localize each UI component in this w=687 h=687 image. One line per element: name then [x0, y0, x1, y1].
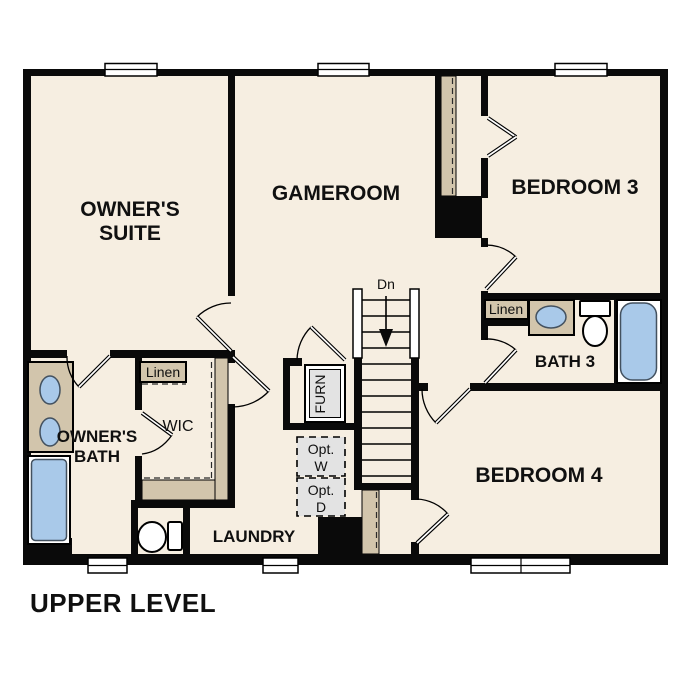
- wall-laundry-left: [183, 508, 190, 554]
- stair-railing-right: [410, 289, 419, 358]
- wic-shelf-right: [215, 358, 228, 500]
- wall-furnace-bottom: [283, 423, 356, 430]
- wall-owners-suite-bottom-b: [110, 350, 233, 358]
- wall-wic-right: [228, 404, 235, 508]
- wall-linen-bath3-bottom: [481, 319, 529, 326]
- bath3-tub-icon: [621, 303, 657, 380]
- furnace-label: FURN: [312, 375, 328, 414]
- wic-linen-label: Linen: [146, 364, 180, 380]
- bedroom3-closet-rod-shelf: [441, 76, 456, 196]
- wall-furnace-left: [283, 358, 290, 430]
- owners-suite-label-line2: SUITE: [99, 222, 161, 245]
- wall-stairs-left: [354, 358, 362, 490]
- owners-suite-label-line1: OWNER'S: [80, 198, 180, 221]
- wall-bedroom3-upper: [481, 76, 488, 116]
- bath3-label: BATH 3: [535, 352, 595, 371]
- owners-bath-label-line2: BATH: [74, 447, 120, 466]
- wall-owners-suite-gameroom: [228, 76, 235, 296]
- owners-bath-tub-icon: [32, 460, 67, 541]
- wic-shelf-bottom: [142, 480, 215, 500]
- bath3-toilet-tank: [580, 301, 610, 316]
- wall-wic-bottom: [131, 500, 235, 508]
- wall-gameroom-closet: [435, 76, 441, 196]
- floor-plan-drawing: OWNER'S SUITE GAMEROOM BEDROOM 3 BATH 3 …: [0, 0, 687, 687]
- wall-wc-left: [131, 500, 138, 554]
- owners-bath-sink-icon-1: [40, 376, 60, 404]
- owners-wc-toilet-tank: [168, 522, 182, 550]
- bath3-toilet-bowl: [583, 316, 607, 346]
- opt-washer-label-line1: Opt.: [308, 441, 334, 457]
- bath3-linen-label: Linen: [489, 301, 523, 317]
- wall-owners-suite-bottom-a: [23, 350, 67, 358]
- wall-bedroom3-mid: [481, 158, 488, 198]
- opt-dryer-label-line2: D: [316, 499, 326, 515]
- wic-label: WIC: [162, 418, 193, 435]
- wall-furnace-top-stub: [283, 358, 302, 366]
- wall-bath3-top: [481, 293, 668, 300]
- wall-stairs-right: [411, 358, 419, 490]
- owners-bath-label-line1: OWNER'S: [57, 427, 138, 446]
- chase-block-lower: [318, 517, 362, 554]
- owners-wc-toilet-bowl: [138, 522, 166, 552]
- stair-railing-left: [353, 289, 362, 358]
- stair-down-label: Dn: [377, 276, 395, 292]
- laundry-label: LAUNDRY: [213, 527, 296, 546]
- bedroom4-label: BEDROOM 4: [475, 464, 603, 487]
- wall-bedroom4-top-right: [470, 383, 668, 391]
- bath3-sink-icon: [536, 306, 566, 328]
- gameroom-label: GAMEROOM: [272, 182, 400, 205]
- plan-title: UPPER LEVEL: [30, 588, 216, 618]
- chase-block-upper: [435, 196, 482, 238]
- opt-washer-label-line2: W: [314, 458, 328, 474]
- bedroom3-label: BEDROOM 3: [511, 176, 638, 199]
- floor-plan-page: OWNER'S SUITE GAMEROOM BEDROOM 3 BATH 3 …: [0, 0, 687, 687]
- wall-stairs-bottom: [354, 483, 419, 490]
- opt-dryer-label-line1: Opt.: [308, 482, 334, 498]
